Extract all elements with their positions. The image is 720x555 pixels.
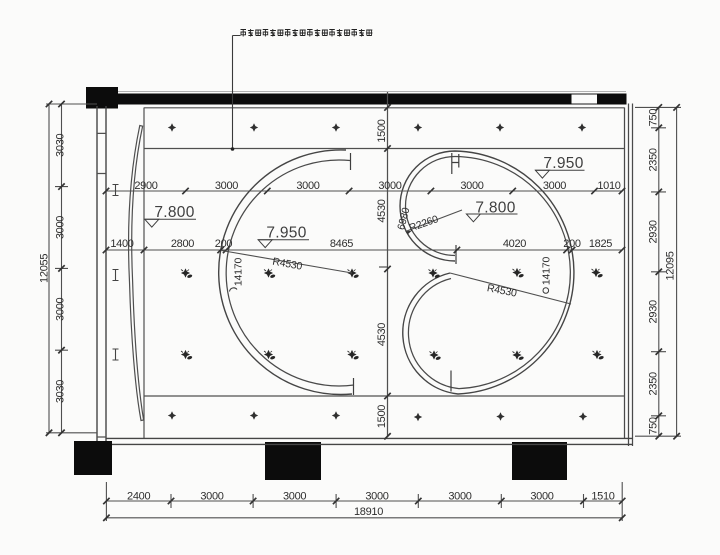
svg-text:3030: 3030 [55,133,67,156]
svg-text:3000: 3000 [215,180,238,192]
svg-text:2350: 2350 [648,372,660,395]
svg-text:R4530: R4530 [486,282,518,300]
svg-text:18910: 18910 [354,506,383,518]
svg-text:1825: 1825 [589,238,612,250]
svg-text:3000: 3000 [55,297,67,320]
svg-text:R2260: R2260 [408,213,441,234]
svg-text:R4530: R4530 [271,256,303,273]
svg-text:3000: 3000 [55,216,67,239]
svg-text:3030: 3030 [55,380,67,403]
svg-text:3000: 3000 [200,491,223,503]
svg-text:14170: 14170 [541,257,553,286]
svg-text:750: 750 [648,109,660,127]
svg-text:1510: 1510 [591,491,614,503]
svg-text:2930: 2930 [648,220,660,243]
svg-text:3000: 3000 [460,180,483,192]
svg-text:200: 200 [215,238,233,250]
svg-text:14170: 14170 [233,258,245,287]
svg-text:2800: 2800 [171,238,194,250]
svg-text:12095: 12095 [665,251,677,280]
svg-text:2400: 2400 [127,491,150,503]
svg-text:200: 200 [563,238,581,250]
svg-text:4530: 4530 [376,323,388,346]
svg-text:3000: 3000 [448,491,471,503]
svg-text:7.950: 7.950 [266,225,306,242]
svg-text:1500: 1500 [376,405,388,428]
svg-text:3000: 3000 [296,180,319,192]
svg-text:1400: 1400 [110,238,133,250]
svg-text:4530: 4530 [376,199,388,222]
svg-text:3000: 3000 [378,180,401,192]
svg-text:3000: 3000 [283,491,306,503]
svg-text:7.950: 7.950 [543,155,583,172]
svg-text:4020: 4020 [503,238,526,250]
svg-text:1010: 1010 [597,180,620,192]
svg-text:2930: 2930 [648,300,660,323]
svg-text:8465: 8465 [330,238,353,250]
svg-text:3000: 3000 [365,491,388,503]
svg-text:12055: 12055 [39,254,51,283]
svg-text:1500: 1500 [376,119,388,142]
svg-text:7.800: 7.800 [154,204,194,221]
svg-text:3000: 3000 [543,180,566,192]
svg-text:750: 750 [648,417,660,435]
svg-text:2900: 2900 [134,180,157,192]
svg-text:3000: 3000 [530,491,553,503]
svg-text:2350: 2350 [648,148,660,171]
